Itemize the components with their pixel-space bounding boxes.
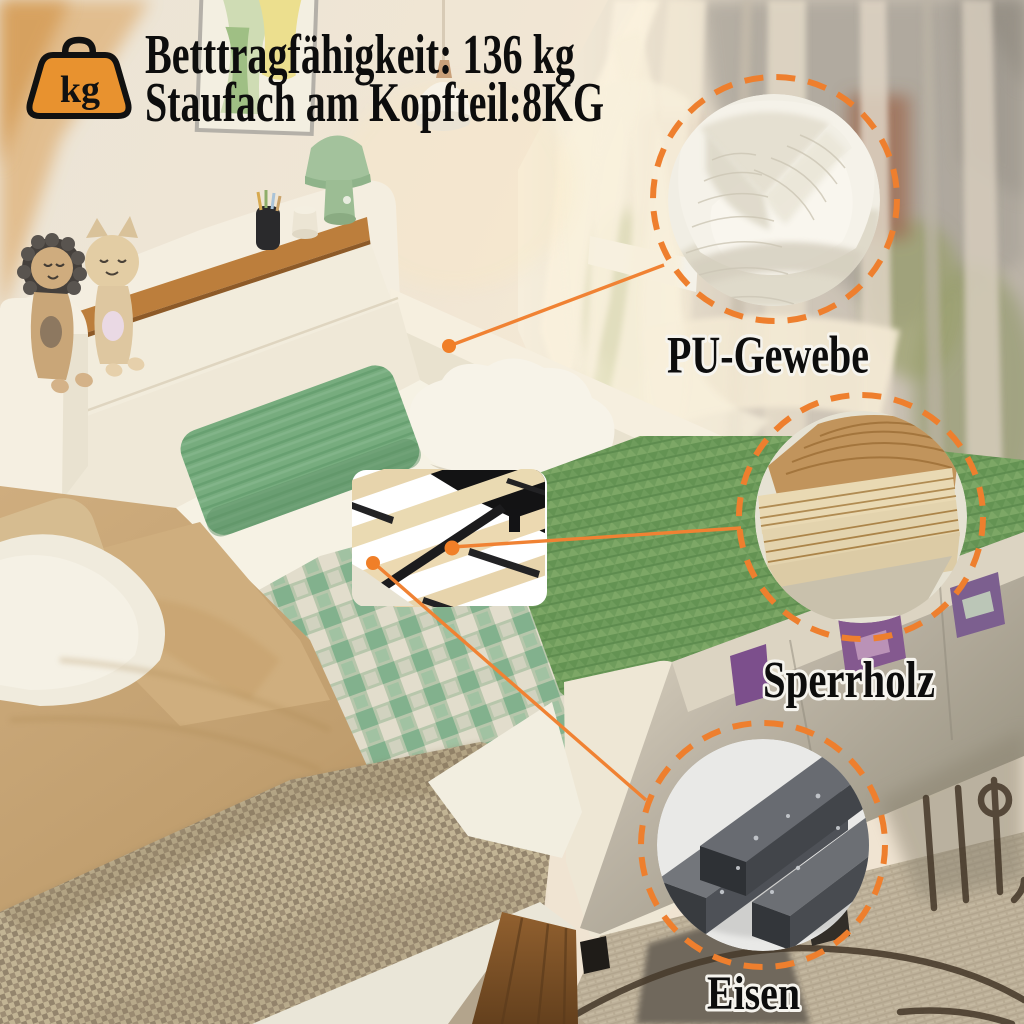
svg-text:Eisen: Eisen [707, 968, 800, 1020]
svg-text:kg: kg [60, 69, 100, 111]
svg-text:PU-Gewebe: PU-Gewebe [667, 327, 869, 385]
svg-text:Staufach am Kopfteil:8KG: Staufach am Kopfteil:8KG [145, 70, 604, 133]
svg-text:Sperrholz: Sperrholz [763, 652, 935, 710]
